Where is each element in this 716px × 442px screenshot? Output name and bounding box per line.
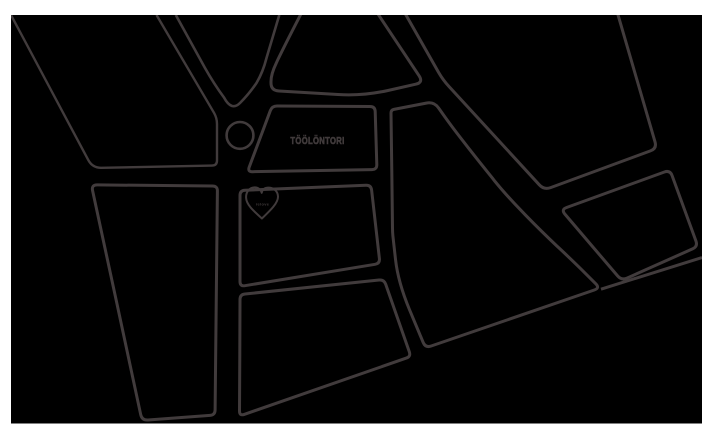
svg-text:TÖÖLÖNTORI: TÖÖLÖNTORI xyxy=(290,135,344,146)
svg-text:relove: relove xyxy=(256,201,270,206)
